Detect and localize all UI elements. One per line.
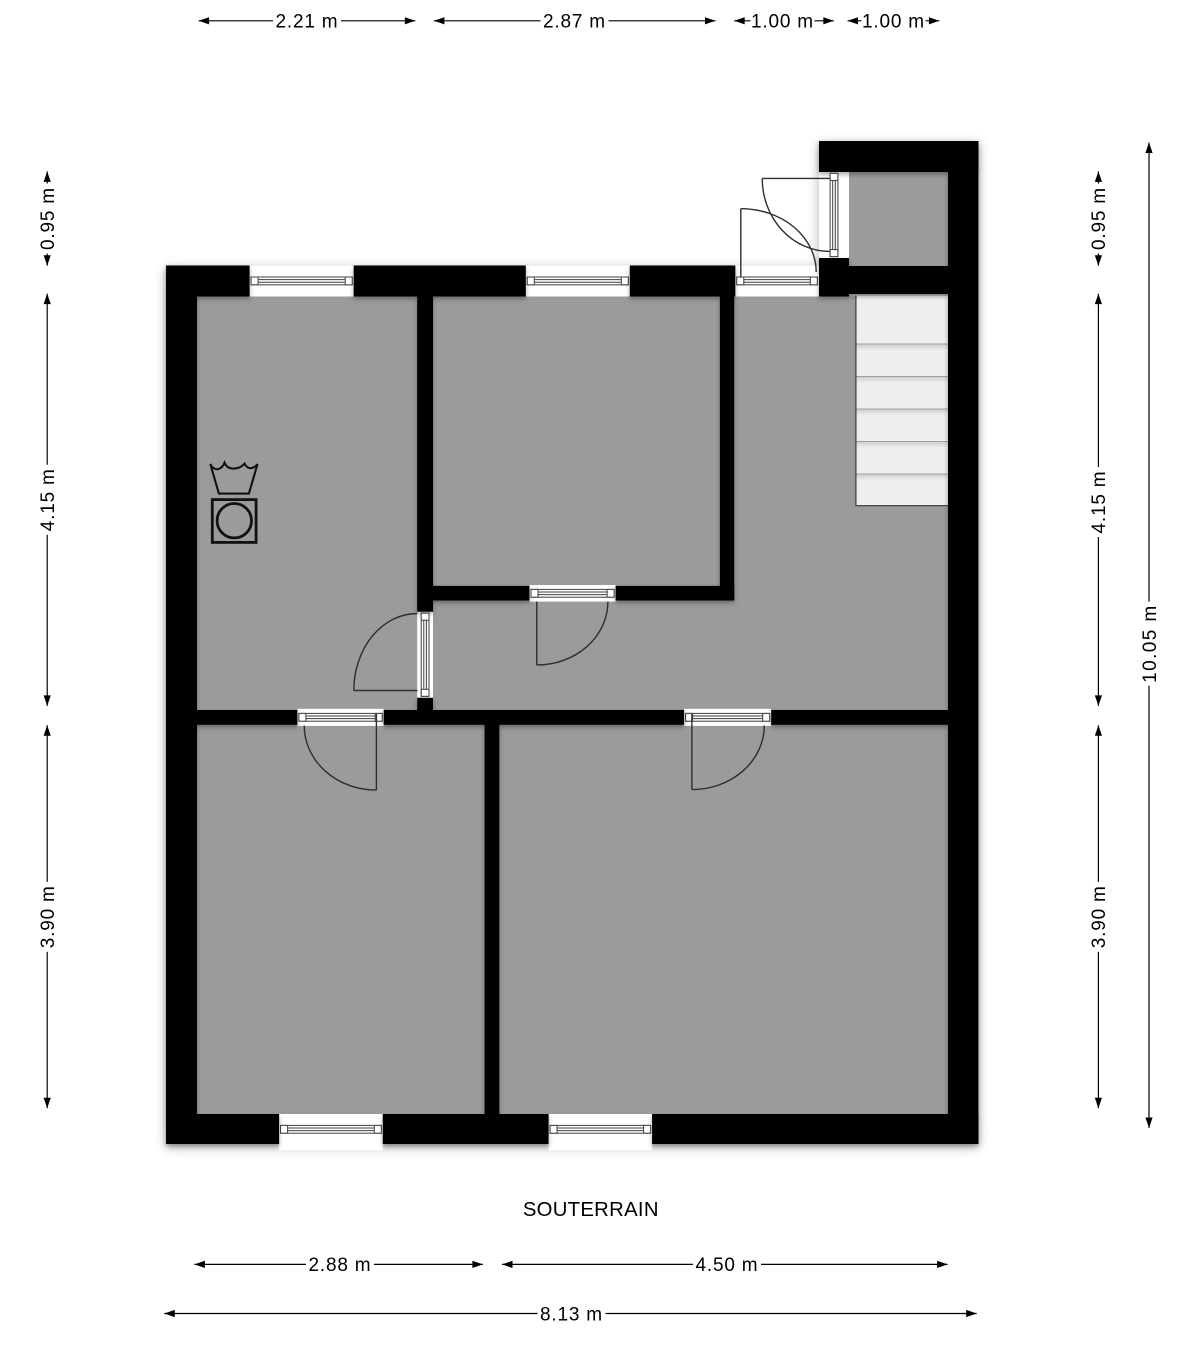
svg-text:4.15 m: 4.15 m — [1089, 471, 1110, 534]
svg-text:1.00 m: 1.00 m — [751, 12, 814, 33]
svg-text:4.15 m: 4.15 m — [38, 468, 59, 531]
svg-text:3.90 m: 3.90 m — [1089, 885, 1110, 948]
svg-text:1.00 m: 1.00 m — [862, 12, 925, 33]
svg-text:0.95 m: 0.95 m — [1089, 187, 1110, 250]
svg-text:4.50 m: 4.50 m — [696, 1255, 759, 1276]
svg-text:10.05 m: 10.05 m — [1140, 604, 1161, 682]
svg-text:2.87 m: 2.87 m — [543, 12, 606, 33]
svg-text:3.90 m: 3.90 m — [38, 885, 59, 948]
svg-text:8.13 m: 8.13 m — [540, 1304, 603, 1325]
svg-text:2.21 m: 2.21 m — [276, 12, 339, 33]
svg-text:SOUTERRAIN: SOUTERRAIN — [523, 1199, 659, 1221]
svg-text:2.88 m: 2.88 m — [309, 1255, 372, 1276]
svg-text:0.95 m: 0.95 m — [38, 187, 59, 250]
